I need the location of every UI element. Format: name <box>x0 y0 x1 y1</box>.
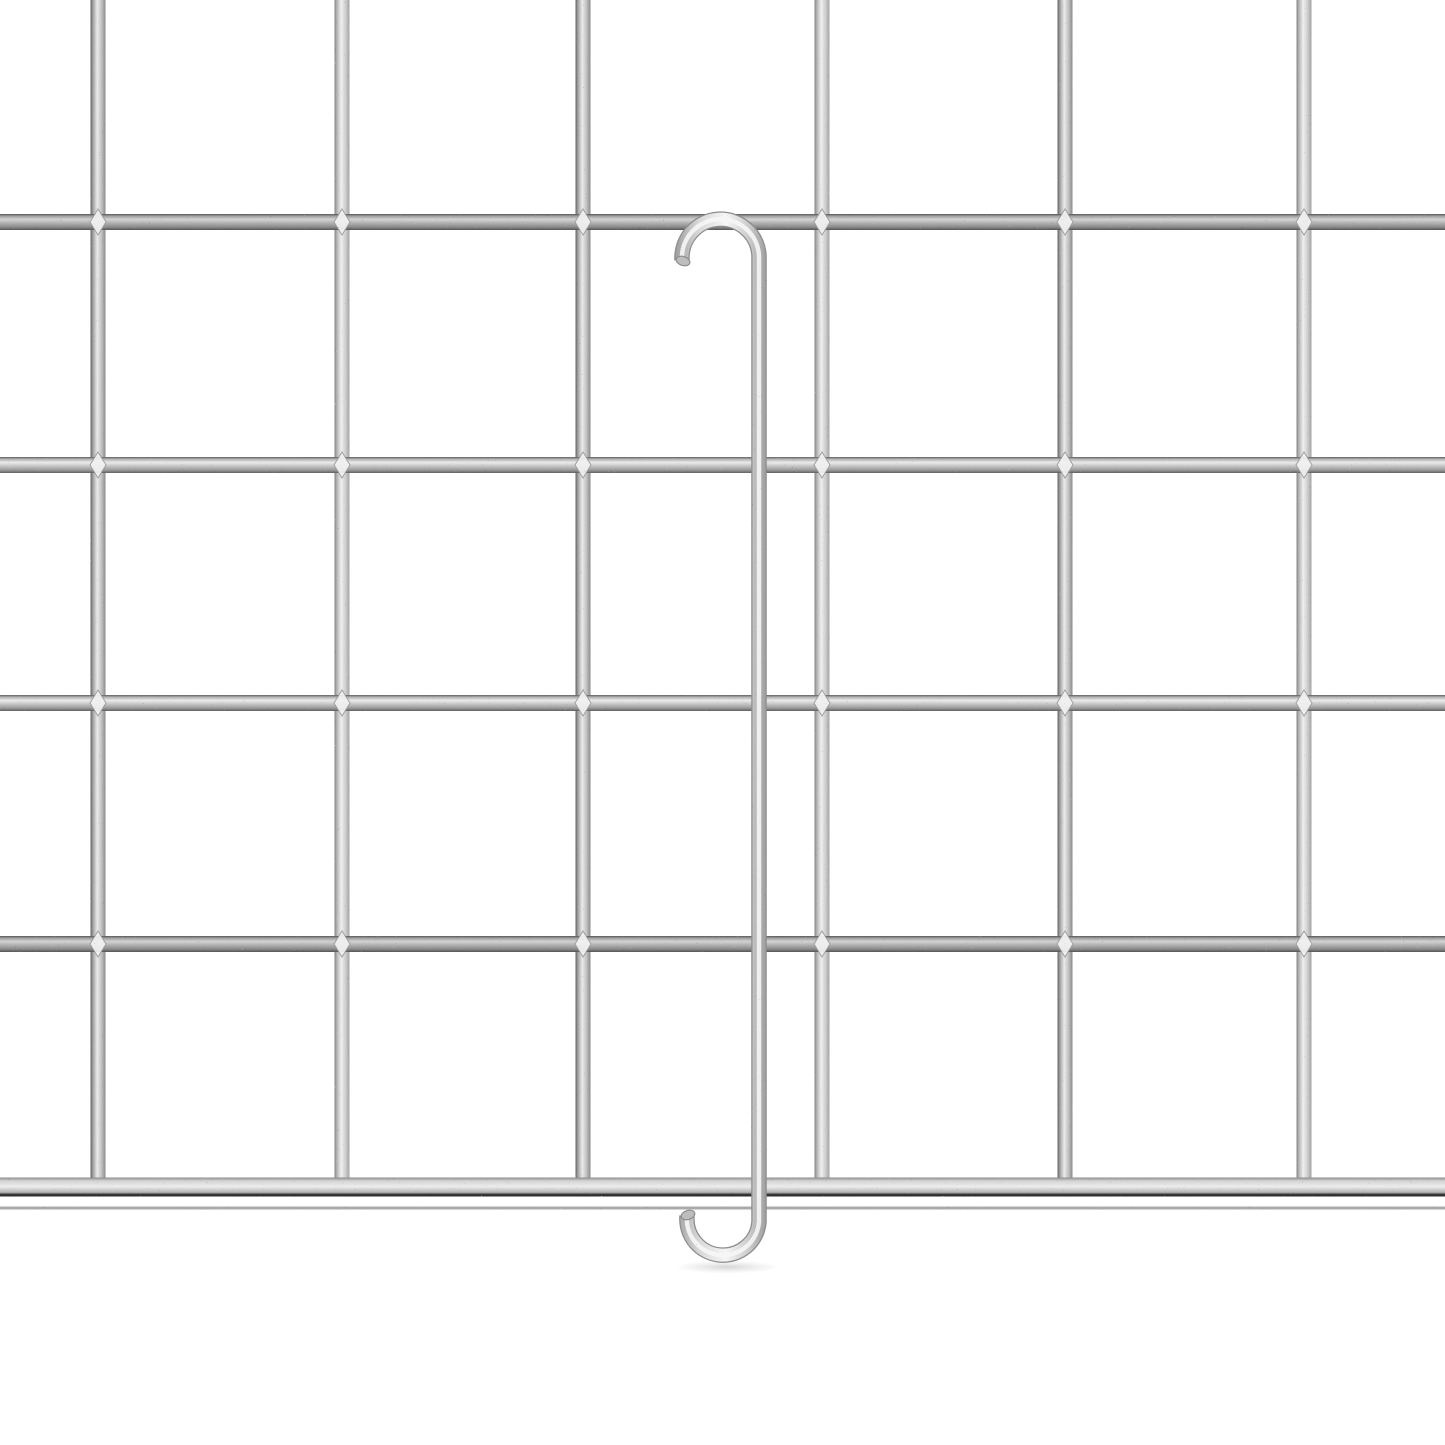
product-photo <box>0 0 1445 1445</box>
horizontal-wire <box>0 457 1445 473</box>
vertical-wire-tone <box>335 0 350 1179</box>
vertical-wire-tone <box>815 0 830 1179</box>
bottom-rail <box>0 1178 1445 1197</box>
horizontal-wire <box>0 695 1445 711</box>
vertical-wire <box>1058 0 1073 1179</box>
wire-grid-scene <box>0 0 1445 1445</box>
vertical-wire <box>91 0 106 1179</box>
horizontal-wire-tone <box>0 936 1445 952</box>
vertical-wire-tone <box>1297 0 1312 1179</box>
vertical-wire <box>576 0 591 1179</box>
back-frame-wire <box>0 1207 1445 1210</box>
